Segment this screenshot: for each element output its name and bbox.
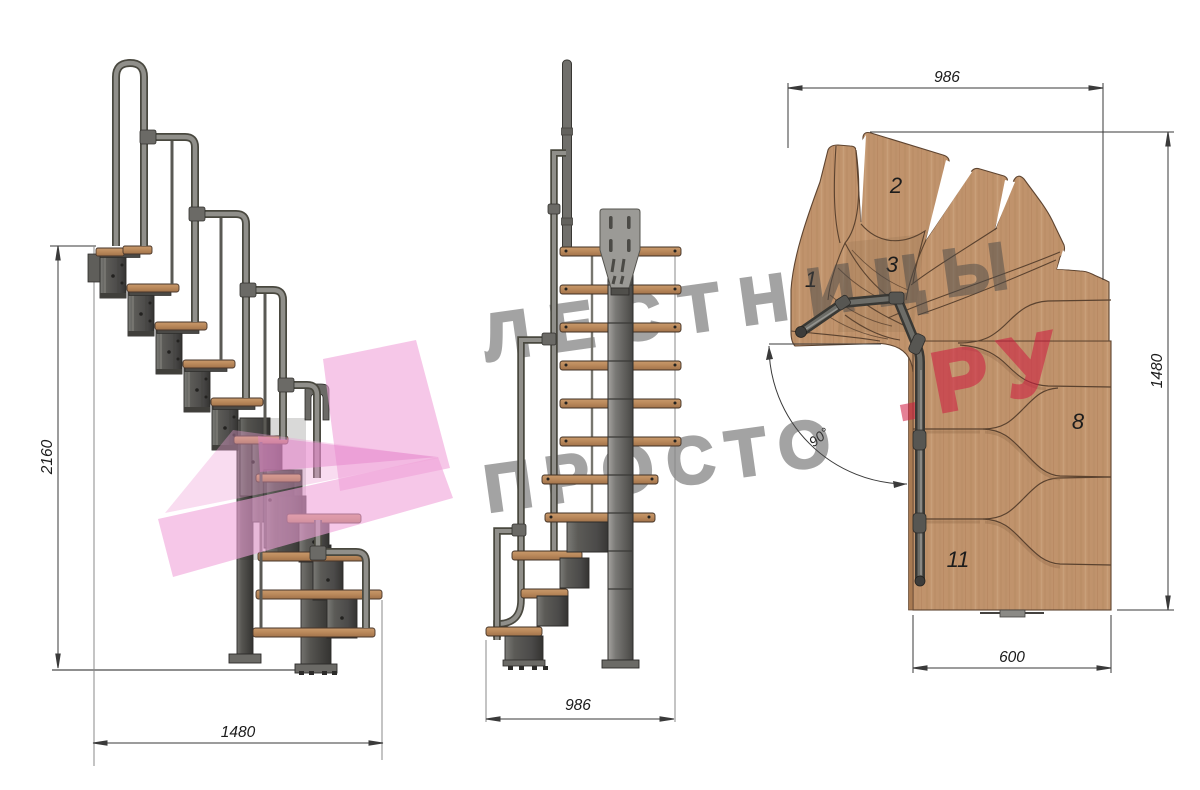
svg-text:600: 600	[999, 649, 1025, 666]
svg-text:2: 2	[889, 173, 902, 198]
svg-text:1480: 1480	[1149, 353, 1166, 388]
svg-text:11: 11	[947, 547, 970, 572]
svg-text:8: 8	[1072, 409, 1085, 434]
svg-text:986: 986	[565, 697, 591, 714]
svg-text:986: 986	[934, 69, 960, 86]
svg-text:2160: 2160	[39, 439, 56, 475]
svg-text:1480: 1480	[221, 724, 256, 741]
